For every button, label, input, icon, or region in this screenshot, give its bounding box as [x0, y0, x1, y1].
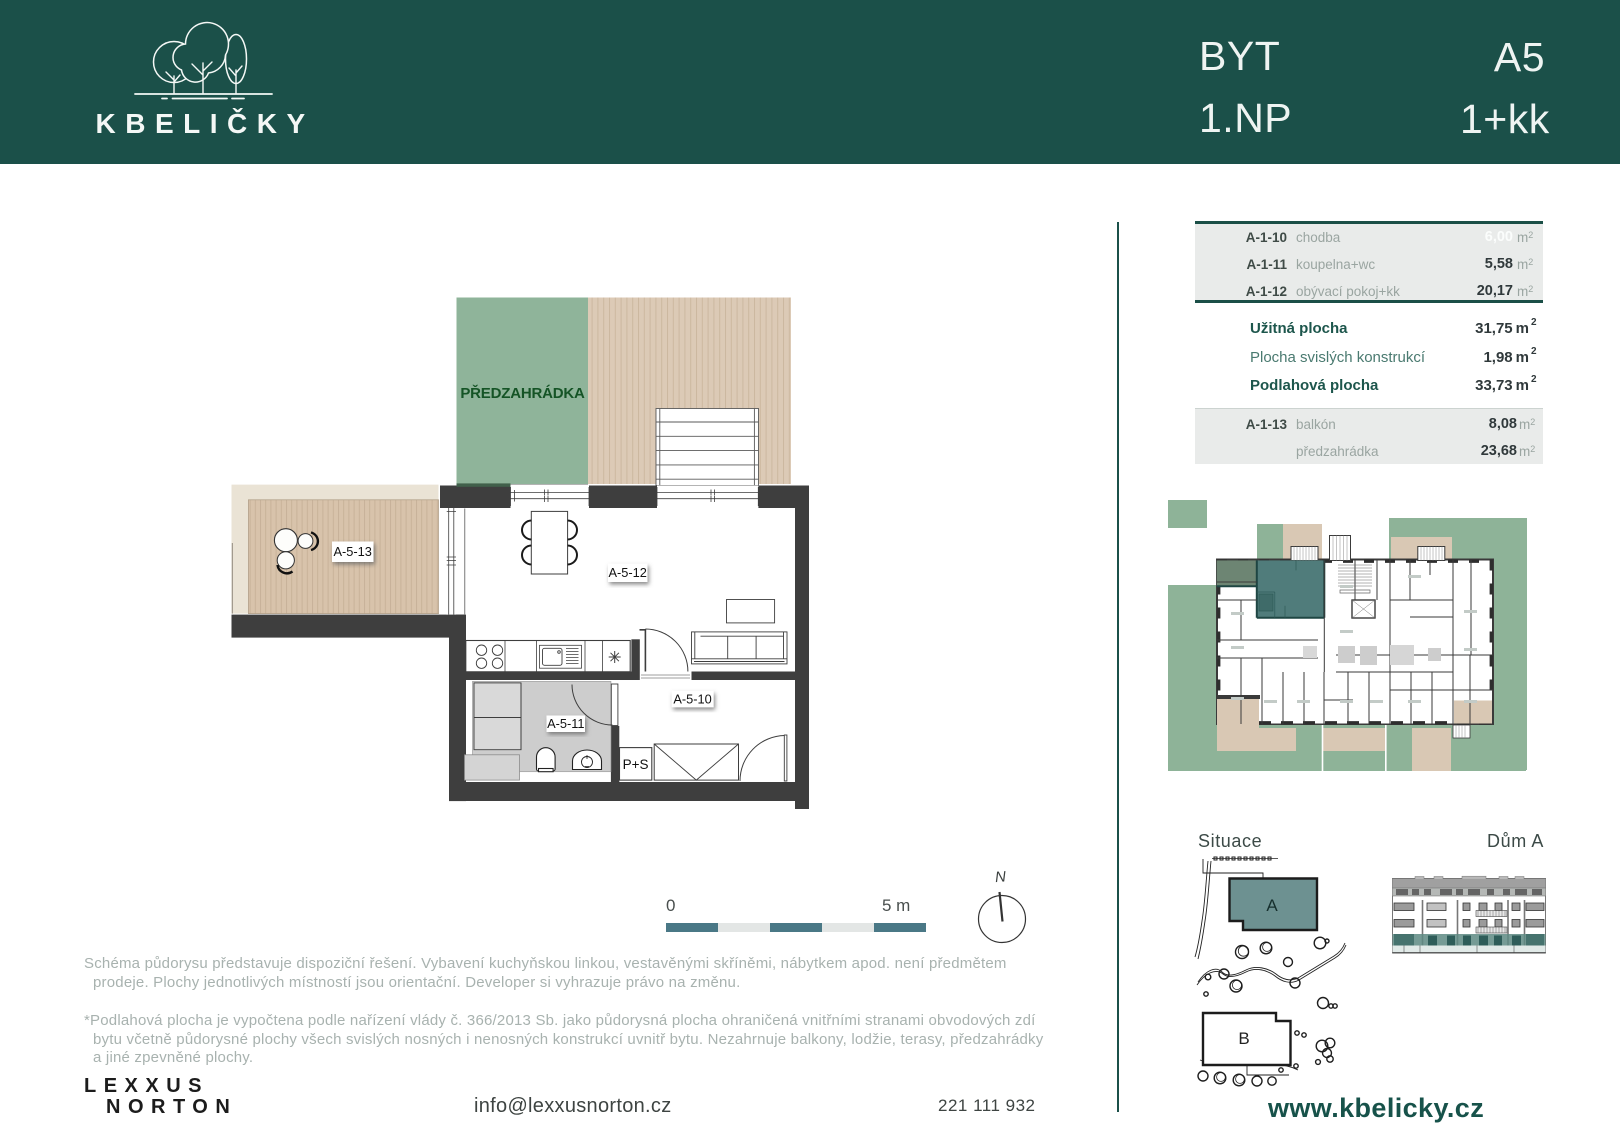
svg-text:A: A	[1266, 896, 1278, 915]
svg-text:A-5-13: A-5-13	[333, 544, 371, 559]
svg-text:B: B	[1238, 1029, 1249, 1048]
svg-text:N: N	[995, 868, 1007, 886]
svg-text:A-5-11: A-5-11	[547, 716, 584, 731]
svg-text:A-5-12: A-5-12	[608, 565, 646, 580]
svg-text:P+S: P+S	[623, 757, 649, 772]
svg-text:PŘEDZAHRÁDKA: PŘEDZAHRÁDKA	[460, 384, 585, 402]
svg-text:A-5-10: A-5-10	[673, 691, 711, 706]
